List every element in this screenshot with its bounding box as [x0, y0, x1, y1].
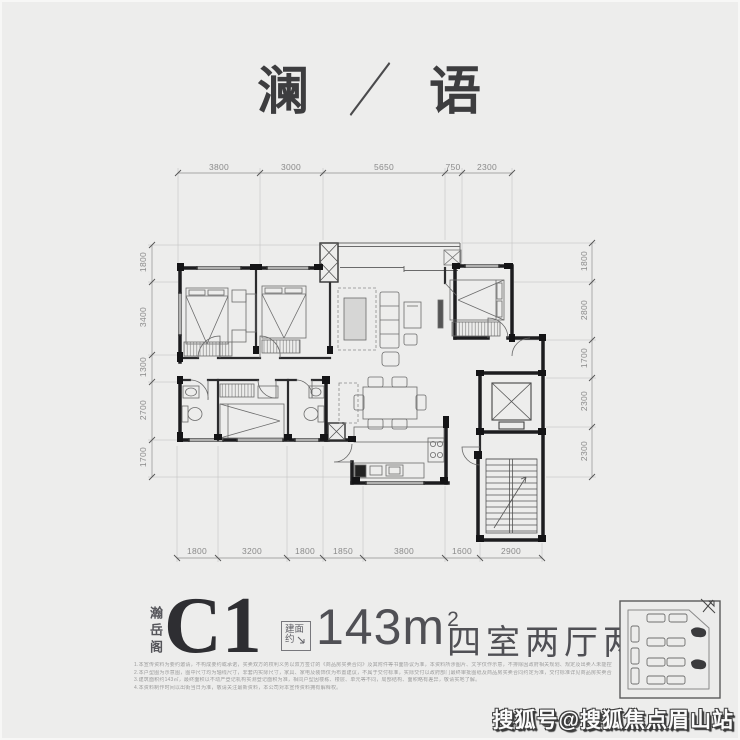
area-approx-badge: 建面 约	[281, 621, 311, 651]
dim-label: 2300	[465, 162, 509, 172]
dim-label: 3200	[230, 546, 274, 556]
disclaimer-line: 2.本户型图为示意图，图中尺寸均为轴线尺寸，非套内实际尺寸，家具、家电及装饰仅为…	[134, 670, 612, 678]
disclaimer-line: 3.建筑面积约143㎡，最终面积以不动产登记机构实测登记面积为准，相同户型因楼栋…	[134, 677, 612, 685]
floorplan-page: 澜 ／ 语	[0, 0, 740, 740]
disclaimer-line: 1.本宣传资料为要约邀请，不构成要约或承诺，买卖双方的权利义务以双方签订的《商品…	[134, 662, 612, 670]
dim-label: 1300	[138, 345, 148, 389]
dim-label: 1700	[579, 336, 589, 380]
dim-label: 3800	[382, 546, 426, 556]
unit-type-label: C1	[164, 586, 262, 666]
building-name: 瀚岳阁	[146, 606, 165, 657]
dim-label: 2700	[138, 388, 148, 432]
dim-label: 2300	[579, 379, 589, 423]
disclaimer-text: 1.本宣传资料为要约邀请，不构成要约或承诺，买卖双方的权利义务以双方签订的《商品…	[134, 662, 612, 692]
watermark-text: 搜狐号@搜狐焦点眉山站	[493, 704, 734, 734]
dim-label: 1600	[440, 546, 484, 556]
dim-label: 2300	[579, 429, 589, 473]
diagonal-arrow-icon	[296, 635, 306, 645]
dim-label: 1800	[579, 239, 589, 283]
site-plan-inset	[617, 596, 727, 702]
disclaimer-line: 4.本资料制作时间以出街当日为准，敬请关注最新资料，本公司对本宣传资料拥有解释权…	[134, 685, 612, 693]
dim-label: 1850	[321, 546, 365, 556]
dim-label: 1700	[138, 435, 148, 479]
dim-label: 2800	[579, 288, 589, 332]
area-approx-badge-line2: 约	[285, 635, 295, 645]
dim-label: 3000	[269, 162, 313, 172]
dim-label: 3800	[197, 162, 241, 172]
dim-label: 3400	[138, 295, 148, 339]
dim-label: 1800	[138, 240, 148, 284]
dim-label: 5650	[362, 162, 406, 172]
dim-label: 1800	[175, 546, 219, 556]
area-value: 143m2	[316, 600, 460, 655]
dim-label: 2900	[489, 546, 533, 556]
